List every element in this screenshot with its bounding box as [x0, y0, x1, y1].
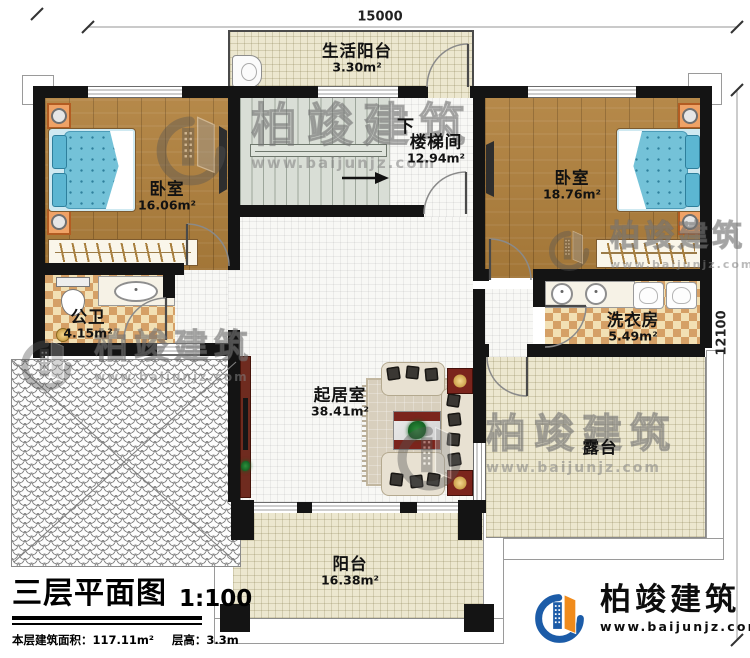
room-label-bedroom-left: 卧室 16.06m² [138, 180, 196, 212]
cushion [446, 393, 461, 408]
terrace-parapet-right [706, 350, 724, 558]
room-label-life-balcony: 生活阳台 3.30m² [322, 42, 392, 74]
bathroom-sink [114, 281, 158, 302]
pillow [685, 135, 700, 169]
window [528, 86, 636, 98]
floor-area-label: 本层建筑面积： [12, 633, 93, 647]
room-label-living-room: 起居室 38.41m² [311, 386, 369, 418]
side-table [447, 368, 473, 394]
laundry-sink [551, 283, 573, 305]
floor-plan: 生活阳台 3.30m² 楼梯间 12.94m² 下 卧室 16.06m² 卧室 … [0, 0, 750, 658]
column [458, 500, 482, 540]
tv-icon [243, 398, 248, 450]
cushion [426, 472, 441, 487]
roof-below [11, 359, 241, 567]
wall-segment [473, 86, 485, 281]
room-label-balcony: 阳台 16.38m² [321, 555, 379, 587]
cushion [447, 412, 461, 426]
dimension-top: 15000 [357, 10, 402, 25]
laundry-sink [585, 283, 607, 305]
stair-handrail [250, 144, 387, 157]
floor-area-value: 117.11m² [93, 633, 154, 647]
room-label-terrace: 露台 [583, 439, 618, 457]
window [157, 343, 200, 356]
wall-segment [228, 86, 240, 270]
brand-logo: 柏竣建筑 www.baijunjz.com [534, 584, 750, 646]
window [473, 443, 486, 500]
window [88, 86, 182, 98]
column [231, 500, 254, 540]
stair-down-label: 下 [397, 112, 414, 137]
wall-segment [33, 343, 157, 356]
wall-segment [33, 263, 184, 275]
washing-machine [666, 282, 697, 309]
washing-machine [232, 55, 262, 88]
room-label-laundry: 洗衣房 5.49m² [607, 311, 660, 343]
brand-logo-icon [534, 584, 592, 646]
toilet-tank [56, 277, 90, 287]
wall-segment [163, 270, 175, 298]
drawing-scale: 1:100 [179, 586, 252, 612]
wall-segment [533, 269, 545, 307]
side-table [447, 470, 473, 496]
title-block: 三层平面图 1:100 本层建筑面积：117.11m²层高：3.3m [12, 568, 252, 648]
wall-segment [228, 330, 240, 502]
balcony-parapet-bottom [214, 618, 504, 644]
plant-icon [241, 461, 250, 471]
wall-segment [400, 502, 417, 513]
window [318, 86, 398, 98]
sofa-right [441, 388, 475, 474]
cushion [446, 432, 460, 446]
nightstand [678, 209, 702, 235]
title-underline-thin [12, 623, 202, 625]
bed-right [616, 128, 704, 212]
sofa-bottom [381, 452, 445, 496]
wardrobe-right [596, 239, 702, 268]
page-title: 三层平面图 [12, 568, 167, 612]
wall-segment [473, 269, 489, 281]
pillow [52, 173, 67, 207]
wall-segment [240, 205, 424, 217]
wall-segment [473, 357, 486, 443]
cushion [447, 452, 462, 467]
wardrobe-left [48, 239, 198, 266]
sofa-top [381, 362, 445, 396]
room-label-bathroom: 公卫 4.15m² [63, 308, 112, 340]
brand-name: 柏竣建筑 [600, 584, 750, 617]
column [464, 604, 494, 632]
cushion [409, 474, 423, 488]
nightstand [47, 103, 71, 129]
dimension-right: 12100 [715, 310, 730, 355]
wall-segment [527, 344, 705, 357]
tv-icon [486, 141, 494, 197]
wall-segment [297, 502, 312, 513]
room-label-stairwell: 楼梯间 12.94m² [407, 133, 465, 165]
cushion [405, 365, 419, 379]
bed-left [48, 128, 136, 212]
pillow [685, 173, 700, 207]
floor-terrace-passage [485, 289, 533, 357]
plant-icon [408, 421, 426, 439]
floor-height-value: 3.3m [206, 633, 238, 647]
terrace-parapet-bottom [486, 538, 724, 560]
cushion [386, 366, 401, 381]
floor-info: 本层建筑面积：117.11m²层高：3.3m [12, 632, 252, 648]
window [253, 502, 297, 513]
wall-segment [533, 269, 705, 281]
title-underline [12, 616, 202, 620]
wall-segment [33, 86, 45, 358]
pillow [52, 135, 67, 169]
floor-height-label: 层高： [172, 633, 207, 647]
wall-segment [700, 86, 712, 348]
cushion [389, 472, 403, 486]
window [312, 502, 400, 513]
tv-icon [219, 126, 227, 194]
wall-segment [182, 86, 318, 98]
window [417, 502, 458, 513]
wall-segment [473, 344, 489, 357]
wall-segment [398, 86, 428, 98]
cushion [424, 367, 438, 381]
nightstand [47, 209, 71, 235]
brand-url: www.baijunjz.com [600, 619, 750, 634]
room-label-bedroom-right: 卧室 18.76m² [543, 169, 601, 201]
nightstand [678, 103, 702, 129]
washing-machine [633, 282, 664, 309]
